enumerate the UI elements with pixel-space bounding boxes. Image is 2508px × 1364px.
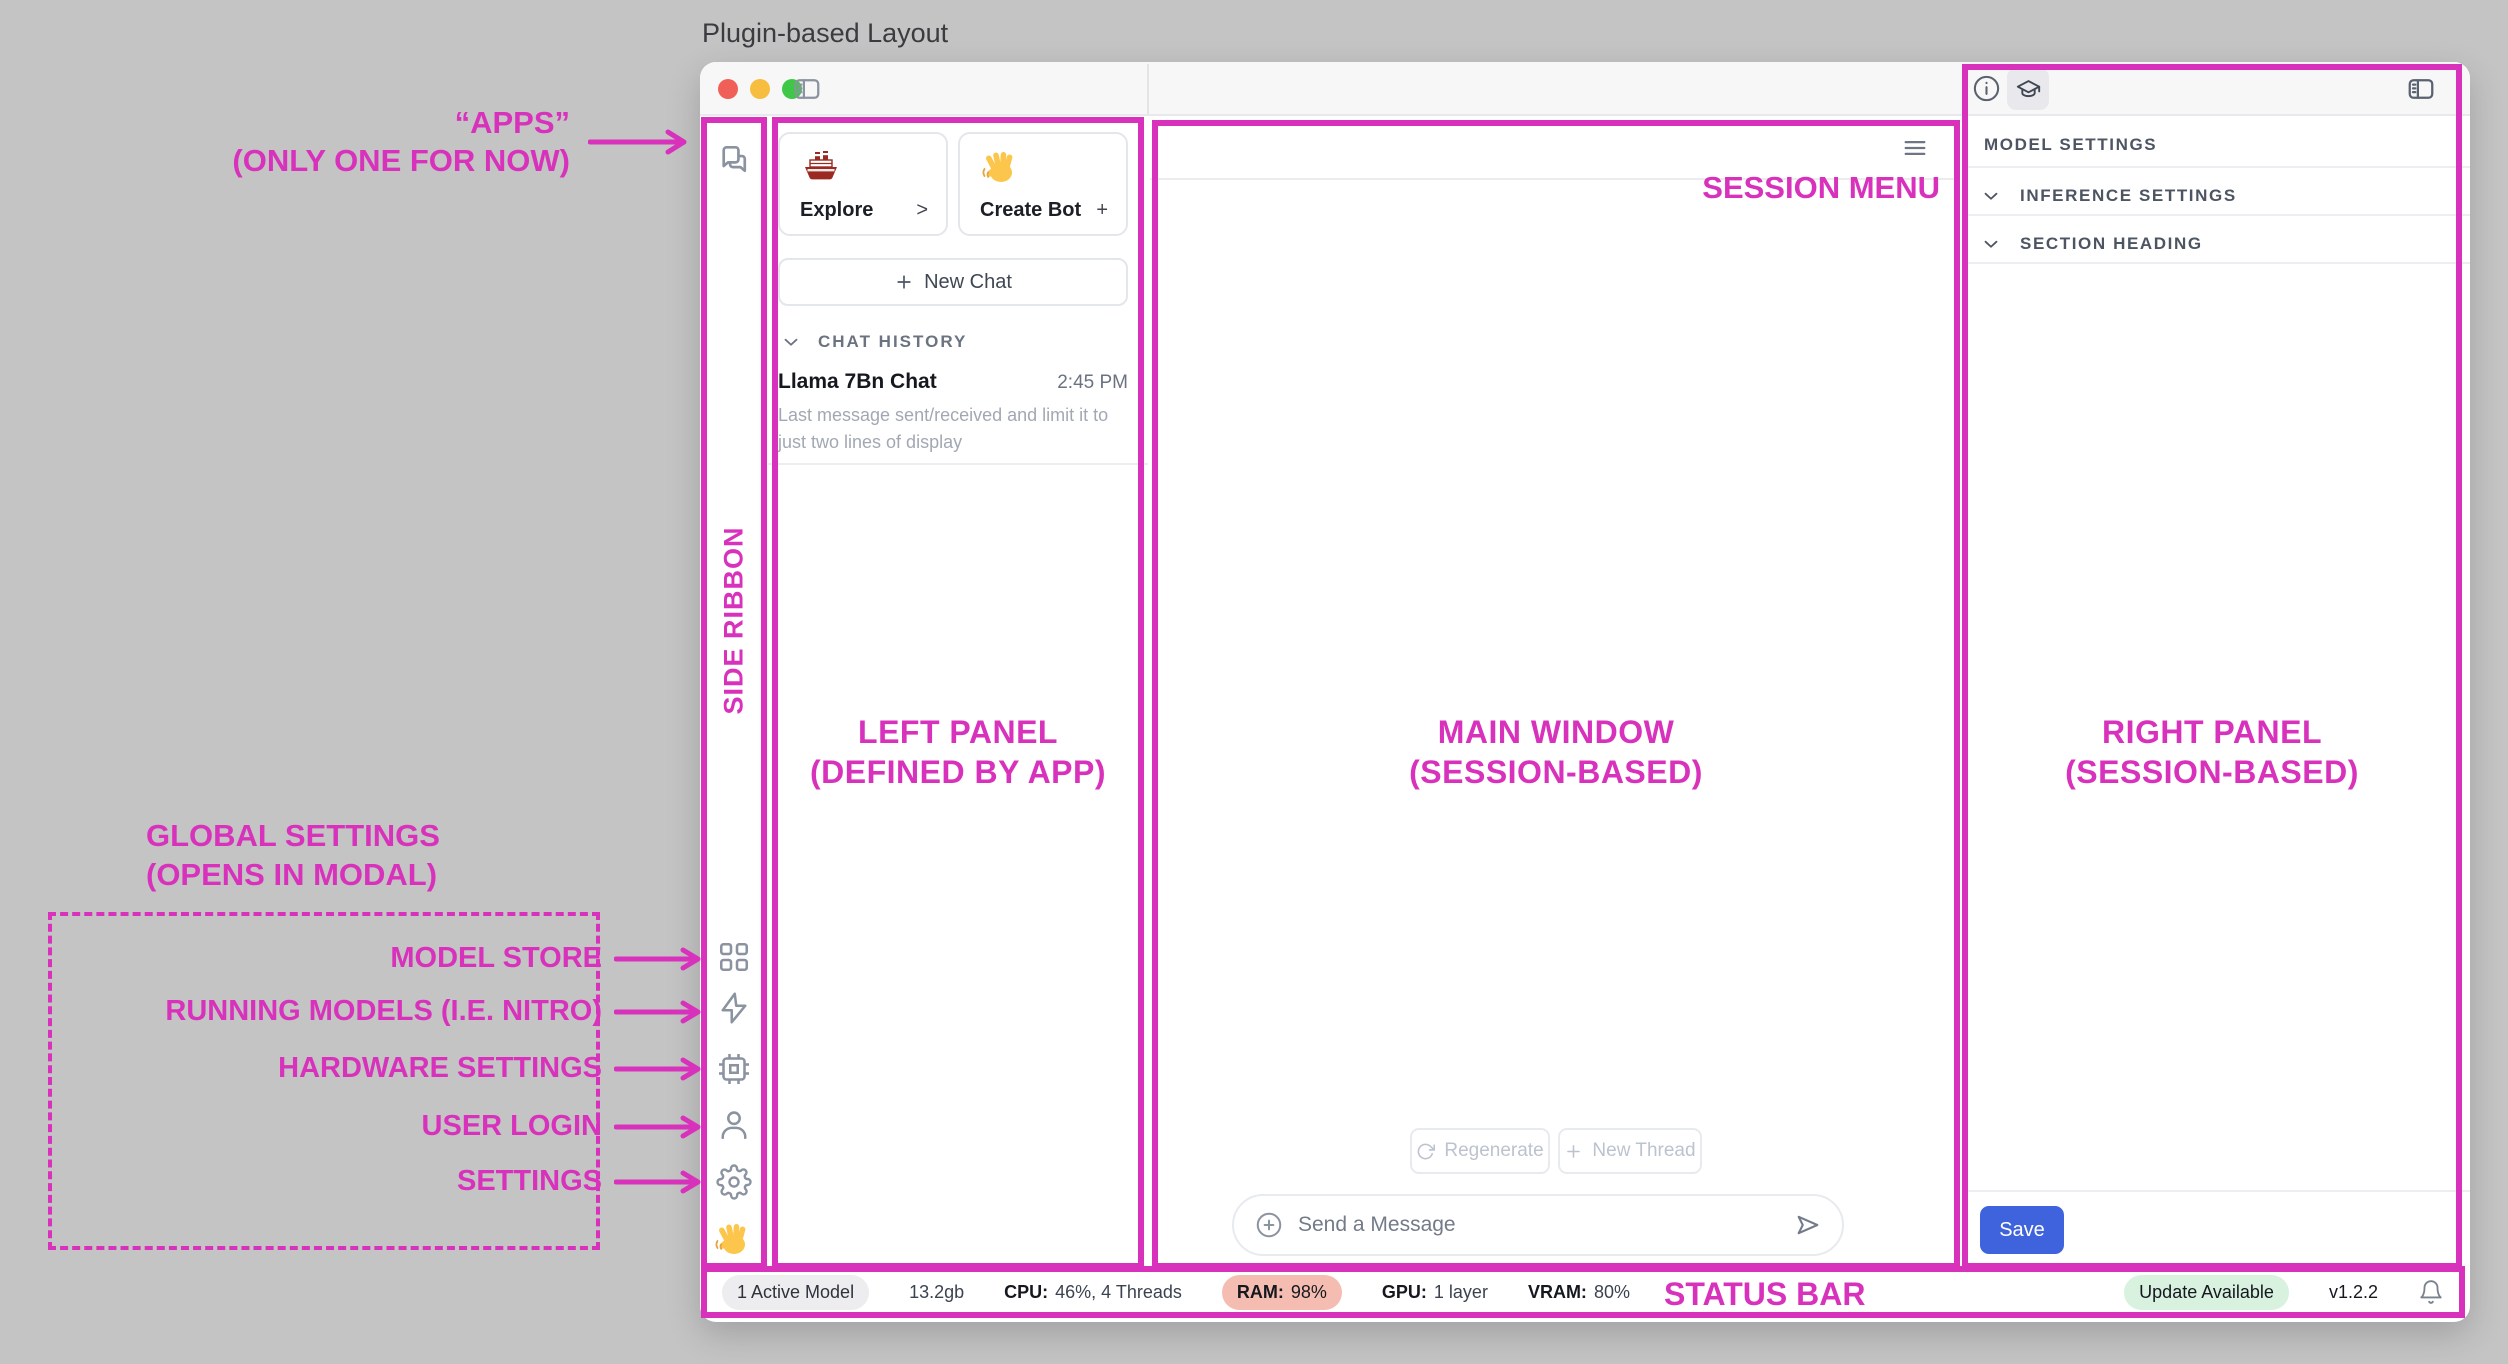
create-bot-card-plus: + (1096, 199, 1108, 222)
close-window-button[interactable] (718, 79, 738, 99)
minimize-window-button[interactable] (750, 79, 770, 99)
right-sidebar-toggle-icon[interactable] (2406, 74, 2436, 104)
cpu-label: CPU: (1004, 1282, 1048, 1303)
annotation-arrow (614, 1056, 706, 1082)
explore-app-card[interactable]: Explore > (778, 132, 948, 236)
design-canvas: Plugin-based Layout (0, 0, 2508, 1364)
settings-gear-icon[interactable] (714, 1162, 754, 1202)
plus-icon (1564, 1142, 1583, 1161)
cpu-status: CPU: 46%, 4 Threads (1004, 1282, 1182, 1303)
chevron-down-icon (1980, 233, 2002, 255)
explore-card-label: Explore (800, 199, 873, 222)
plus-icon (894, 272, 914, 292)
hardware-settings-icon[interactable] (714, 1049, 754, 1089)
vram-status: VRAM: 80% (1528, 1282, 1630, 1303)
new-chat-button[interactable]: New Chat (778, 258, 1128, 306)
right-panel-divider (1964, 214, 2470, 216)
memory-usage: 13.2gb (909, 1282, 964, 1303)
chat-history-item[interactable]: Llama 7Bn Chat 2:45 PM (778, 370, 1128, 394)
wave-hand-icon[interactable] (713, 1220, 753, 1260)
running-models-icon[interactable] (714, 988, 754, 1028)
section-heading-label: SECTION HEADING (2020, 234, 2203, 254)
update-available-badge[interactable]: Update Available (2124, 1275, 2289, 1310)
user-login-icon[interactable] (714, 1105, 754, 1145)
message-composer (1232, 1194, 1844, 1256)
save-button[interactable]: Save (1980, 1206, 2064, 1254)
chat-history-header[interactable]: CHAT HISTORY (780, 331, 967, 353)
annotation-apps-line2: (ONLY ONE FOR NOW) (232, 142, 570, 180)
model-settings-header: MODEL SETTINGS (1984, 135, 2157, 155)
app-version: v1.2.2 (2329, 1282, 2378, 1303)
model-settings-tab-icon[interactable] (2007, 68, 2049, 110)
annotation-arrow (588, 128, 692, 156)
send-icon[interactable] (1794, 1211, 1822, 1239)
annotation-arrow (614, 1169, 706, 1195)
new-thread-label: New Thread (1592, 1140, 1695, 1162)
chat-item-preview: Last message sent/received and limit it … (778, 402, 1130, 456)
section-heading-section[interactable]: SECTION HEADING (1980, 233, 2203, 255)
cpu-value: 46%, 4 Threads (1055, 1282, 1182, 1303)
new-chat-label: New Chat (924, 271, 1012, 294)
regenerate-button[interactable]: Regenerate (1410, 1128, 1550, 1174)
annotation-model-store: MODEL STORE (390, 942, 706, 975)
ram-label: RAM: (1237, 1282, 1284, 1303)
message-input[interactable] (1298, 1213, 1780, 1237)
save-divider (1964, 1190, 2470, 1192)
main-header-divider (1150, 178, 1960, 180)
annotation-apps: “APPS” (ONLY ONE FOR NOW) (232, 104, 692, 180)
status-bar: 1 Active Model 13.2gb CPU: 46%, 4 Thread… (700, 1268, 2470, 1316)
titlebar-divider (1147, 64, 1149, 114)
annotation-arrow (614, 946, 706, 972)
refresh-icon (1416, 1142, 1435, 1161)
new-thread-button[interactable]: New Thread (1558, 1128, 1702, 1174)
right-panel-divider (1964, 262, 2470, 264)
window-titlebar (700, 62, 2470, 116)
chevron-down-icon (1980, 185, 2002, 207)
info-icon[interactable] (1971, 73, 2002, 104)
ram-value: 98% (1291, 1282, 1327, 1303)
page-title: Plugin-based Layout (702, 18, 948, 49)
create-bot-card-label: Create Bot (980, 199, 1081, 222)
create-bot-card[interactable]: Create Bot + (958, 132, 1128, 236)
chat-app-icon[interactable] (714, 140, 754, 180)
session-menu-icon[interactable] (1898, 134, 1932, 162)
ram-status-badge: RAM: 98% (1222, 1275, 1342, 1310)
annotation-arrow (614, 999, 706, 1025)
annotation-apps-line1: “APPS” (232, 104, 570, 142)
inference-settings-section[interactable]: INFERENCE SETTINGS (1980, 185, 2237, 207)
chat-history-label: CHAT HISTORY (818, 332, 967, 352)
vram-value: 80% (1594, 1282, 1630, 1303)
model-store-icon[interactable] (714, 937, 754, 977)
annotation-user-login: USER LOGIN (422, 1110, 706, 1143)
attach-plus-icon[interactable] (1254, 1210, 1284, 1240)
wave-emoji-icon (980, 148, 1108, 188)
chat-list-divider (768, 463, 1148, 465)
annotation-running-models: RUNNING MODELS (I.E. NITRO) (165, 995, 706, 1028)
annotation-global-settings: GLOBAL SETTINGS (OPENS IN MODAL) (146, 816, 440, 894)
left-sidebar-toggle-icon[interactable] (792, 74, 822, 104)
active-models-badge: 1 Active Model (722, 1275, 869, 1310)
gpu-status: GPU: 1 layer (1382, 1282, 1488, 1303)
regenerate-label: Regenerate (1444, 1140, 1543, 1162)
right-panel-divider (1964, 166, 2470, 168)
annotation-settings: SETTINGS (457, 1165, 706, 1198)
annotation-hardware-settings: HARDWARE SETTINGS (278, 1052, 706, 1085)
ship-emoji-icon (800, 148, 928, 188)
inference-settings-label: INFERENCE SETTINGS (2020, 186, 2237, 206)
annotation-dashed-box (48, 912, 600, 1250)
chat-item-time: 2:45 PM (1057, 372, 1128, 394)
gpu-value: 1 layer (1434, 1282, 1488, 1303)
vram-label: VRAM: (1528, 1282, 1587, 1303)
explore-card-chevron: > (916, 199, 928, 222)
chat-item-title: Llama 7Bn Chat (778, 370, 937, 394)
annotation-arrow (614, 1114, 706, 1140)
gpu-label: GPU: (1382, 1282, 1427, 1303)
chevron-down-icon (780, 331, 802, 353)
notifications-bell-icon[interactable] (2418, 1279, 2444, 1305)
